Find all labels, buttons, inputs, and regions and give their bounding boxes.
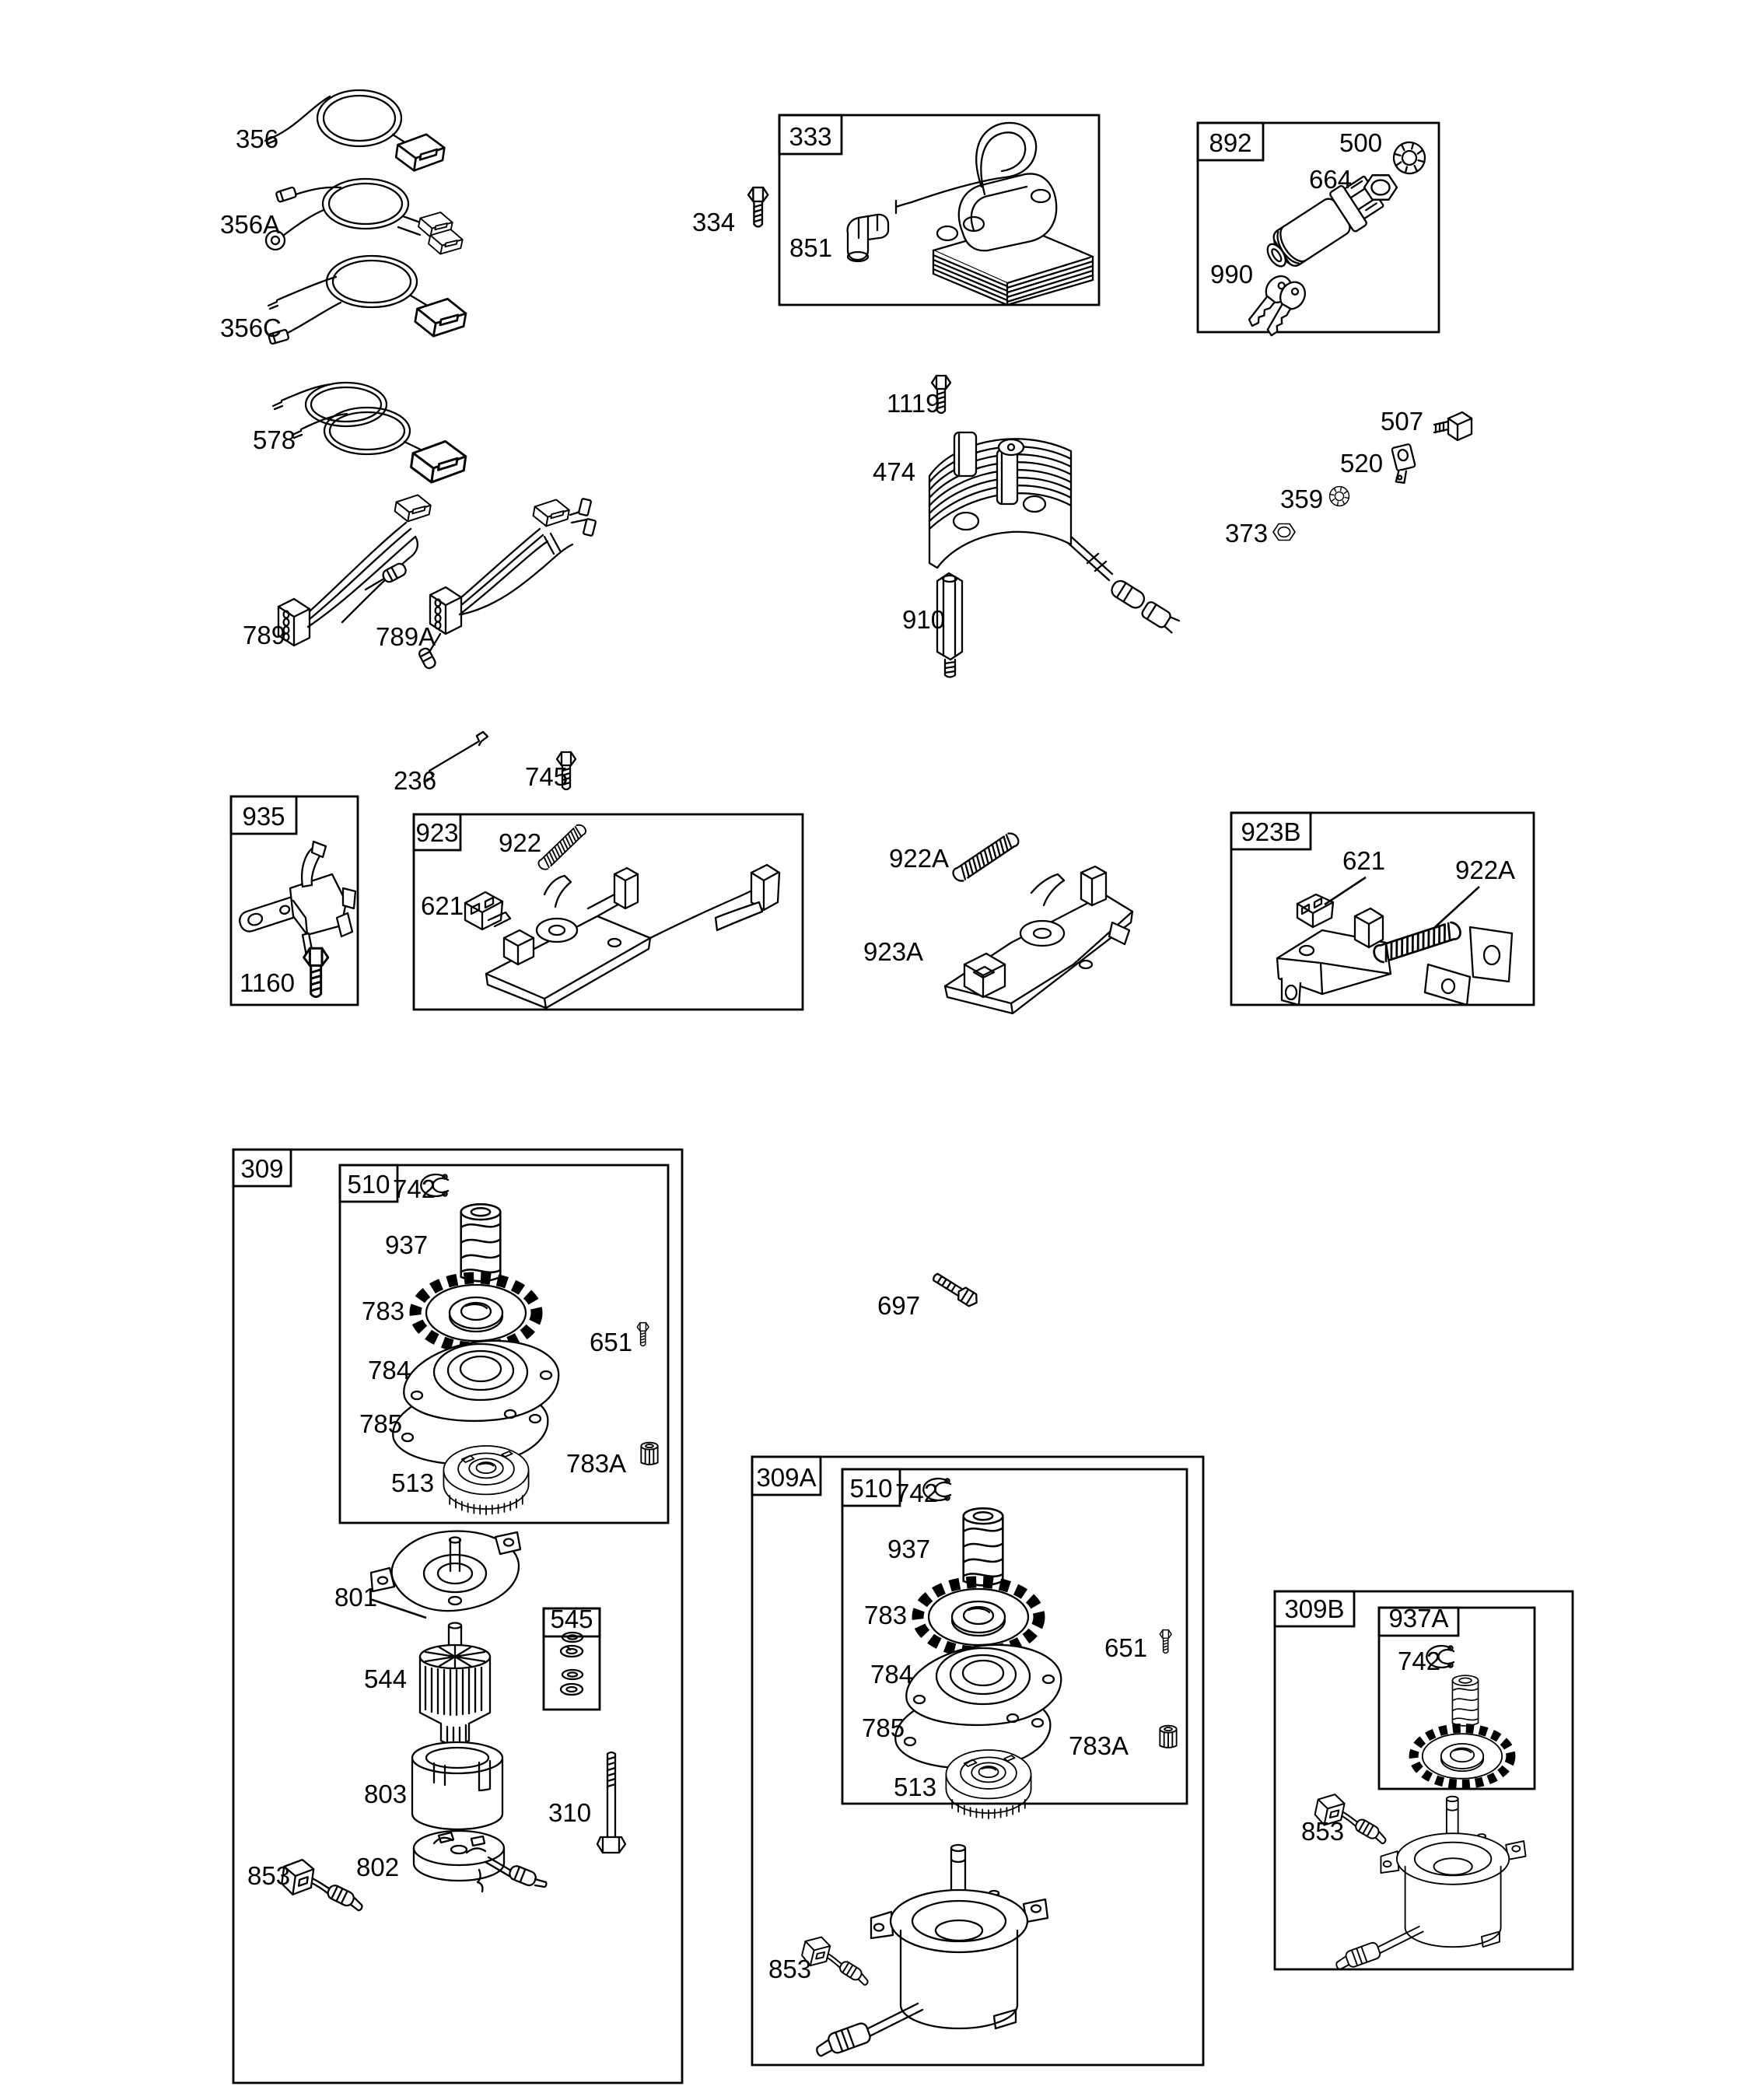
harness-789A-art [418,496,596,670]
nut-664-art [1364,175,1397,200]
coil-333-art [896,123,1093,305]
part-label-p801: 801 [334,1583,377,1612]
terminal-621-art [465,892,510,929]
terminal-621-923B-art [1297,894,1333,927]
endcap-801-art [371,1531,520,1612]
clutch-513-art [443,1446,528,1514]
part-label-p1119: 1119 [887,389,940,418]
cover-784-785-309A-art [895,1645,1061,1769]
part-label-p742: 742 [393,1174,436,1203]
lead-621b [1325,877,1366,905]
part-label-p513b: 513 [894,1773,936,1801]
part-label-p937b: 937 [887,1535,930,1563]
pinion-783A-309A-art [1160,1726,1176,1748]
part-label-p783: 783 [362,1297,404,1325]
part-label-p853: 853 [247,1861,290,1890]
spark-boot-851-art [848,215,888,261]
starter-motor-309A-art [813,1845,1048,2060]
part-label-p745: 745 [525,762,568,791]
part-label-p742c: 742 [1398,1647,1440,1675]
part-label-p783b: 783 [864,1601,907,1629]
gear-783-art [415,1278,537,1348]
part-label-p783A: 783A [566,1449,626,1478]
part-label-p513: 513 [391,1468,434,1497]
part-label-p356C: 356C [220,313,282,342]
part-label-p697: 697 [877,1291,920,1320]
part-label-p500: 500 [1339,128,1382,157]
part-label-p356A: 356A [220,210,280,239]
spring-922-art [537,822,587,872]
part-label-p922A: 922A [889,844,949,873]
armature-474-art [929,432,1180,634]
part-label-p507: 507 [1381,407,1423,436]
part-label-p356: 356 [236,124,278,153]
wire-356C-art [268,256,468,345]
part-label-p742b: 742 [895,1479,938,1507]
worm-937-309A-art [964,1508,1003,1585]
part-label-p651b: 651 [1104,1633,1147,1662]
part-label-p783Ab: 783A [1069,1731,1129,1760]
part-label-p784: 784 [368,1356,411,1384]
screw-334-art [748,187,768,226]
gear-783-309A-art [918,1582,1039,1652]
endcap-802-art [414,1831,546,1892]
box-923B-label: 923B [1241,817,1300,846]
part-label-p651: 651 [590,1328,632,1356]
spring-922A-art [951,830,1021,884]
parts-diagram-page: 333892935923923B309510545309A510309B937A [0,0,1750,2100]
part-label-p621: 621 [421,891,464,920]
screw-651-309A-art [1160,1630,1171,1654]
part-label-p923A: 923A [863,937,923,966]
group-part-labels: 356356A356C578789789A3348515006649901119… [220,124,1515,1983]
armature-544-art [420,1623,490,1759]
terminal-520-art [1388,444,1419,485]
wire-356A-art [266,179,464,258]
box-333-label: 333 [789,122,831,151]
bracket-923B-art [1277,894,1512,1005]
part-label-p802: 802 [356,1853,399,1881]
part-label-p853c: 853 [1301,1817,1344,1846]
box-510-label: 510 [347,1170,390,1199]
part-label-p937: 937 [385,1230,428,1259]
box-545-label: 545 [550,1605,593,1633]
switch-507-art [1434,412,1472,440]
part-label-p578: 578 [253,425,296,454]
housing-803-art [412,1742,502,1829]
part-label-p1160: 1160 [240,968,295,997]
screw-651-art [637,1323,649,1346]
bracket-923A-art [945,866,1132,1013]
star-washer-500-art [1391,139,1429,177]
bolt-697-art [931,1270,981,1308]
parts-diagram-canvas: 333892935923923B309510545309A510309B937A [0,0,1750,2100]
part-label-p803: 803 [364,1780,407,1808]
part-label-p789A: 789A [376,622,436,651]
part-label-p785b: 785 [862,1713,905,1742]
pinion-783A-art [641,1443,657,1465]
lead-922Ab [1435,887,1479,927]
keyswitch-990-art [1241,172,1387,340]
box-309-label: 309 [240,1154,283,1183]
box-923-label: 923 [415,818,458,847]
part-label-p373: 373 [1225,519,1268,548]
part-label-p922: 922 [499,828,541,857]
box-935-label: 935 [242,802,285,831]
worm-937-art [461,1204,501,1281]
part-label-p621b: 621 [1342,846,1385,875]
wire-578-art [273,383,467,486]
part-label-p520: 520 [1340,449,1383,478]
screw-1160-art [304,948,328,996]
part-label-p664: 664 [1309,165,1352,194]
star-washer-359-art [1328,485,1350,507]
wire-356-art [265,90,446,174]
box-309B-label: 309B [1284,1594,1344,1623]
part-label-p922Ab: 922A [1455,856,1515,884]
part-label-p544: 544 [364,1664,407,1693]
part-label-p474: 474 [873,457,915,486]
part-label-p784b: 784 [870,1660,913,1689]
part-label-p853b: 853 [768,1955,811,1983]
washers-545-art [561,1633,583,1695]
bolt-310-art [597,1752,625,1853]
part-label-p334: 334 [692,208,735,236]
box-510A-label: 510 [849,1474,892,1503]
part-label-p359: 359 [1280,485,1323,513]
cover-784-785-art [393,1341,558,1465]
clutch-513-309A-art [946,1750,1031,1818]
nut-373-art [1273,524,1295,541]
part-label-p851: 851 [789,233,832,262]
part-label-p785: 785 [359,1409,402,1438]
worm-937A-art [1452,1675,1478,1726]
part-label-p310: 310 [548,1798,591,1827]
box-892-label: 892 [1209,128,1251,157]
part-label-p236: 236 [394,766,436,795]
gear-783-309B-art [1414,1728,1511,1784]
part-label-p789: 789 [243,621,285,649]
part-label-p990: 990 [1210,260,1253,289]
part-label-p910: 910 [902,605,945,634]
box-309A-label: 309A [756,1463,816,1492]
